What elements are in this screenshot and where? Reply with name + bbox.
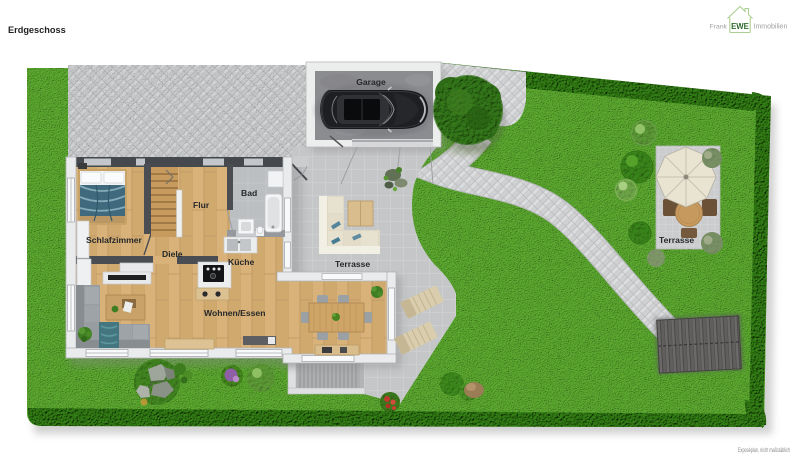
svg-text:Immobilien: Immobilien — [754, 24, 788, 31]
svg-text:Flur: Flur — [193, 200, 210, 210]
svg-text:Terrasse: Terrasse — [335, 259, 370, 269]
svg-text:Terrasse: Terrasse — [659, 235, 694, 245]
svg-text:Küche: Küche — [228, 257, 254, 267]
svg-text:EWE: EWE — [731, 22, 749, 31]
svg-text:Bad: Bad — [241, 188, 257, 198]
svg-text:Exposéplan, nicht maßstäblich: Exposéplan, nicht maßstäblich — [738, 448, 790, 454]
svg-text:Garage: Garage — [356, 77, 386, 87]
svg-text:Diele: Diele — [162, 249, 183, 259]
svg-text:Frank: Frank — [710, 24, 728, 31]
svg-text:Wohnen/Essen: Wohnen/Essen — [204, 308, 265, 318]
svg-text:Erdgeschoss: Erdgeschoss — [8, 25, 66, 35]
svg-text:Schlafzimmer: Schlafzimmer — [86, 235, 143, 245]
